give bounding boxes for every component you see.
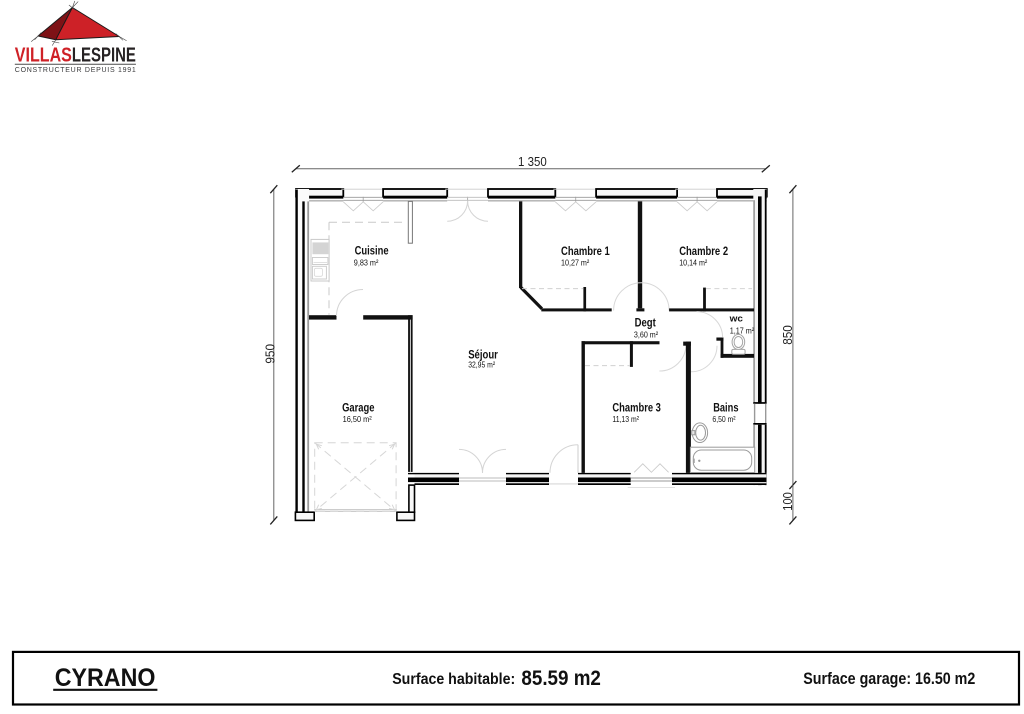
svg-text:CONSTRUCTEUR DEPUIS 1991: CONSTRUCTEUR DEPUIS 1991 <box>15 67 136 74</box>
svg-text:Chambre 2: Chambre 2 <box>679 246 728 258</box>
svg-text:100: 100 <box>780 492 795 510</box>
svg-text:10,14 m²: 10,14 m² <box>679 257 707 267</box>
svg-text:Chambre 1: Chambre 1 <box>561 246 610 258</box>
svg-text:1 350: 1 350 <box>518 154 547 169</box>
svg-text:9,83 m²: 9,83 m² <box>354 257 379 267</box>
svg-text:1,17 m²: 1,17 m² <box>730 325 755 335</box>
svg-text:10,27 m²: 10,27 m² <box>561 257 589 267</box>
svg-text:11,13 m²: 11,13 m² <box>612 414 639 424</box>
svg-text:Chambre 3: Chambre 3 <box>612 403 661 415</box>
svg-text:LESPINE: LESPINE <box>72 45 136 67</box>
svg-text:32,95 m²: 32,95 m² <box>468 360 495 370</box>
svg-text:VILLAS: VILLAS <box>15 45 72 67</box>
svg-text:6,50 m²: 6,50 m² <box>712 414 735 424</box>
svg-text:Degt: Degt <box>635 318 656 330</box>
svg-text:wc: wc <box>729 313 743 324</box>
svg-text:CYRANO: CYRANO <box>55 664 156 692</box>
svg-text:850: 850 <box>780 325 795 345</box>
svg-text:3,60 m²: 3,60 m² <box>634 330 658 340</box>
svg-text:16,50 m²: 16,50 m² <box>343 414 372 424</box>
svg-text:Bains: Bains <box>713 403 738 415</box>
svg-text:Cuisine: Cuisine <box>355 246 389 258</box>
svg-text:Surface habitable:: Surface habitable: <box>392 671 515 688</box>
svg-text:Surface garage: 16.50 m2: Surface garage: 16.50 m2 <box>803 670 975 688</box>
svg-text:Garage: Garage <box>342 403 374 415</box>
svg-text:85.59 m2: 85.59 m2 <box>521 667 601 690</box>
svg-text:950: 950 <box>262 344 277 364</box>
